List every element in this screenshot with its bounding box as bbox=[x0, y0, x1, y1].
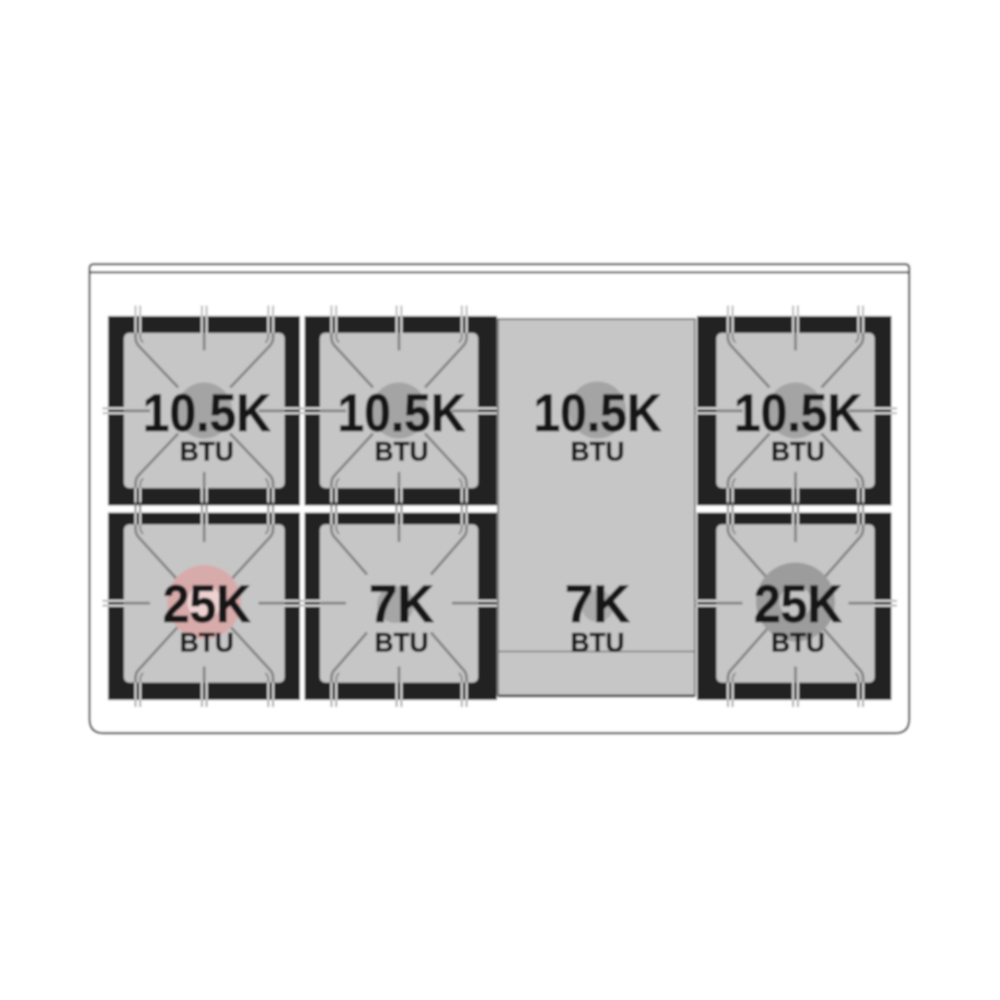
svg-text:BTU: BTU bbox=[375, 628, 429, 658]
svg-text:25K: 25K bbox=[163, 575, 251, 634]
svg-text:10.5K: 10.5K bbox=[338, 384, 466, 443]
svg-text:10.5K: 10.5K bbox=[534, 384, 662, 443]
svg-text:BTU: BTU bbox=[180, 437, 234, 467]
svg-text:BTU: BTU bbox=[771, 628, 825, 658]
svg-text:25K: 25K bbox=[754, 575, 842, 634]
svg-text:10.5K: 10.5K bbox=[143, 384, 271, 443]
svg-text:BTU: BTU bbox=[180, 628, 234, 658]
svg-text:BTU: BTU bbox=[571, 437, 625, 467]
svg-text:BTU: BTU bbox=[771, 437, 825, 467]
svg-text:10.5K: 10.5K bbox=[734, 384, 862, 443]
svg-text:7K: 7K bbox=[565, 575, 630, 634]
svg-text:BTU: BTU bbox=[571, 628, 625, 658]
svg-text:7K: 7K bbox=[369, 575, 434, 634]
svg-text:BTU: BTU bbox=[375, 437, 429, 467]
